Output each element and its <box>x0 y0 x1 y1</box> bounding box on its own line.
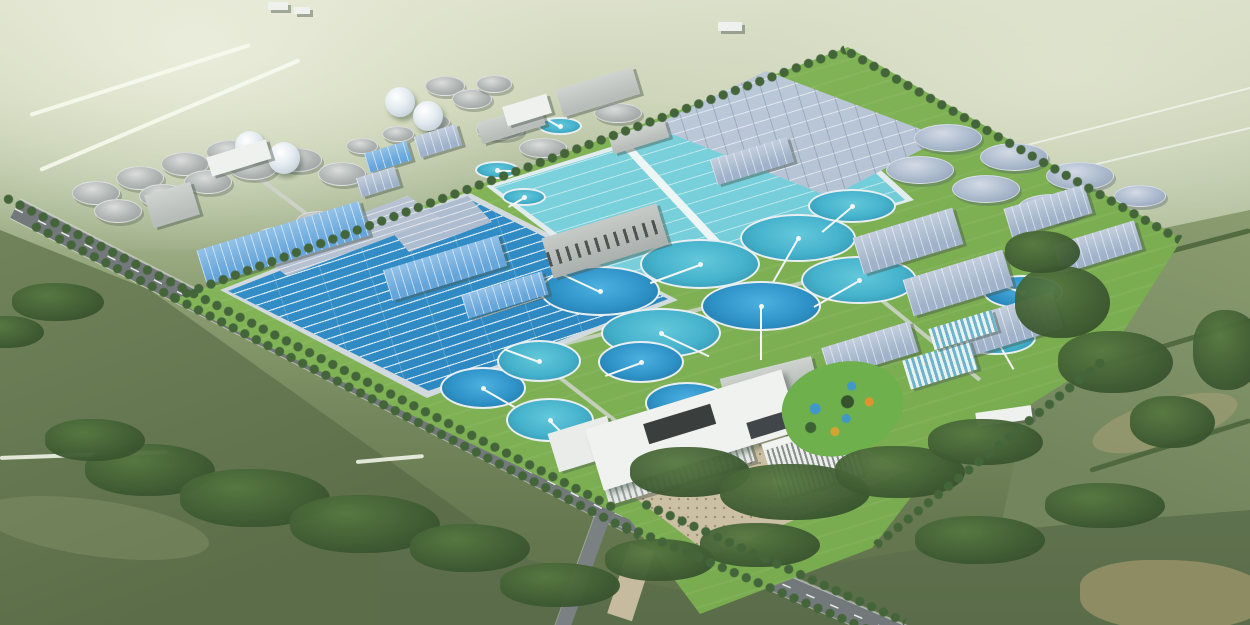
digester-tank <box>382 126 414 142</box>
digester-tank <box>94 199 142 223</box>
tree-cluster <box>1130 396 1215 448</box>
gas-holder-sphere <box>413 101 443 131</box>
tree-cluster <box>1193 310 1250 390</box>
clarifier-tank <box>808 189 896 223</box>
farm-shed <box>294 7 310 14</box>
clarifier-tank <box>538 117 582 135</box>
clarifier-tank <box>502 188 546 206</box>
farm-shed <box>268 2 288 10</box>
clarifier-tank <box>598 341 684 383</box>
tree-cluster <box>1045 483 1165 528</box>
gas-holder-sphere <box>268 142 300 174</box>
tree-cluster <box>1005 231 1080 273</box>
gas-holder-sphere <box>385 87 415 117</box>
covered-tank <box>886 156 954 184</box>
tree-cluster <box>500 563 620 607</box>
tree-cluster <box>410 524 530 572</box>
tree-cluster <box>12 283 104 321</box>
tree-cluster <box>915 516 1045 564</box>
clarifier-tank <box>701 281 821 331</box>
clarifier-tank <box>497 340 581 382</box>
tree-cluster <box>45 419 145 461</box>
tree-cluster <box>1015 266 1110 338</box>
covered-tank <box>952 175 1020 203</box>
digester-tank <box>476 75 512 93</box>
aerial-rendering-wastewater-plant <box>0 0 1250 625</box>
dirt-patch <box>1080 560 1250 625</box>
farm-shed <box>718 22 742 31</box>
